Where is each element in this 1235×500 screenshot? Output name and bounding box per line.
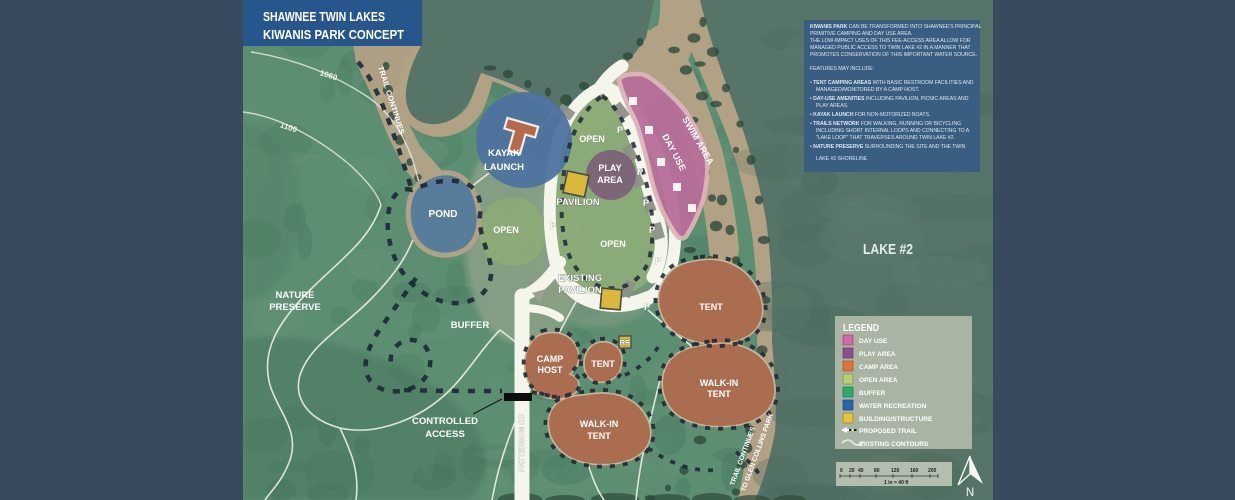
svg-text:DAY USE: DAY USE (859, 338, 888, 345)
svg-text:KAYAK: KAYAK (488, 148, 520, 159)
svg-text:120: 120 (891, 468, 900, 474)
svg-text:160: 160 (910, 468, 919, 474)
svg-text:• KAYAK LAUNCH FOR NON-MOTORIZ: • KAYAK LAUNCH FOR NON-MOTORIZED BOATS. (810, 112, 930, 118)
svg-text:P: P (617, 125, 624, 136)
svg-text:WALK-IN: WALK-IN (580, 419, 619, 429)
svg-text:PLAY AREA: PLAY AREA (859, 351, 896, 358)
svg-text:PRESERVE: PRESERVE (269, 302, 321, 313)
svg-text:OPEN AREA: OPEN AREA (859, 377, 898, 384)
svg-text:MANAGED/MONITORED BY A CAMP HO: MANAGED/MONITORED BY A CAMP HOST. (816, 87, 919, 93)
svg-text:P: P (643, 198, 650, 209)
svg-text:BUFFER: BUFFER (451, 320, 490, 331)
svg-text:"LAKE LOOP" THAT TRAVERSES ARO: "LAKE LOOP" THAT TRAVERSES AROUND TWIN L… (816, 135, 955, 141)
svg-text:PLAY: PLAY (598, 163, 621, 173)
svg-text:80: 80 (874, 468, 880, 474)
svg-text:ACCESS: ACCESS (425, 429, 465, 440)
svg-text:PLAY AREAS.: PLAY AREAS. (816, 103, 848, 109)
svg-text:TENT: TENT (699, 302, 723, 312)
svg-text:PROMOTES CONSERVATION OF THIS: PROMOTES CONSERVATION OF THIS IMPORTANT … (810, 52, 977, 58)
svg-text:200: 200 (928, 468, 937, 474)
svg-text:LAUNCH: LAUNCH (484, 162, 524, 173)
svg-text:INCLUDING SHORT INTERNAL LOOPS: INCLUDING SHORT INTERNAL LOOPS AND CONNE… (816, 128, 970, 134)
svg-text:AREA: AREA (597, 175, 623, 185)
svg-text:WATER RECREATION: WATER RECREATION (859, 403, 927, 410)
svg-text:P: P (655, 256, 662, 267)
svg-text:LAKE #2: LAKE #2 (863, 242, 913, 258)
svg-text:HOST: HOST (537, 365, 563, 375)
svg-text:KIWANIS PARK CAN BE TRANSFORME: KIWANIS PARK CAN BE TRANSFORMED INTO SHA… (810, 24, 982, 30)
svg-text:LAKE #2 SHORELINE.: LAKE #2 SHORELINE. (816, 156, 868, 162)
svg-text:N: N (966, 487, 974, 499)
svg-text:PATTERSON RD: PATTERSON RD (517, 413, 526, 472)
svg-text:CAMP: CAMP (537, 354, 564, 364)
svg-text:BUILDING/STRUCTURE: BUILDING/STRUCTURE (859, 416, 933, 423)
svg-text:P: P (637, 167, 644, 178)
svg-text:P: P (649, 225, 656, 236)
svg-text:TENT: TENT (591, 359, 615, 369)
svg-text:NATURE: NATURE (276, 290, 315, 301)
svg-text:PRIMITIVE CAMPING AND DAY USE: PRIMITIVE CAMPING AND DAY USE AREA. (810, 31, 912, 37)
svg-text:EXISTING: EXISTING (558, 273, 602, 284)
svg-text:1 in = 40 ft: 1 in = 40 ft (884, 480, 909, 486)
svg-text:PAVILION: PAVILION (558, 285, 602, 296)
svg-text:• DAY-USE AMENITIES INCLUDING: • DAY-USE AMENITIES INCLUDING PAVILION, … (810, 96, 969, 102)
svg-text:0: 0 (840, 468, 843, 474)
svg-text:P: P (550, 221, 557, 232)
svg-text:KIWANIS PARK CONCEPT: KIWANIS PARK CONCEPT (263, 27, 404, 42)
svg-text:EXISTING CONTOURS: EXISTING CONTOURS (859, 441, 929, 448)
svg-text:P: P (644, 302, 651, 313)
svg-text:THE LOW-IMPACT USES OF THIS FE: THE LOW-IMPACT USES OF THIS FEE-ACCESS A… (810, 38, 971, 44)
svg-text:OPEN: OPEN (493, 225, 519, 235)
svg-text:20: 20 (849, 468, 855, 474)
svg-text:• NATURE PRESERVE SURROUNDING: • NATURE PRESERVE SURROUNDING THE SITE A… (810, 144, 966, 150)
svg-text:POND: POND (429, 209, 458, 220)
svg-text:SHAWNEE TWIN LAKES: SHAWNEE TWIN LAKES (263, 9, 385, 24)
svg-text:MANAGED PUBLIC ACCESS TO TWIN: MANAGED PUBLIC ACCESS TO TWIN LAKE #2 IN… (810, 45, 971, 51)
svg-text:RR: RR (620, 338, 631, 347)
svg-text:OPEN: OPEN (579, 134, 605, 144)
svg-text:PROPOSED TRAIL: PROPOSED TRAIL (859, 428, 917, 435)
svg-text:TENT: TENT (707, 389, 731, 399)
svg-text:CAMP AREA: CAMP AREA (859, 364, 898, 371)
svg-text:FEATURES MAY INCLUDE:: FEATURES MAY INCLUDE: (810, 66, 874, 72)
svg-text:CONTROLLED: CONTROLLED (412, 416, 478, 427)
svg-text:LEGEND: LEGEND (843, 323, 879, 334)
svg-text:WALK-IN: WALK-IN (700, 378, 739, 388)
svg-text:• TENT CAMPING AREAS WITH BASI: • TENT CAMPING AREAS WITH BASIC RESTROOM… (810, 80, 974, 86)
svg-text:BUFFER: BUFFER (859, 390, 886, 397)
svg-text:40: 40 (858, 468, 864, 474)
svg-text:PAVILION: PAVILION (556, 197, 600, 208)
svg-text:OPEN: OPEN (600, 239, 626, 249)
svg-text:TENT: TENT (587, 431, 611, 441)
svg-text:• TRAILS NETWORK FOR WALKING,: • TRAILS NETWORK FOR WALKING, RUNNING OR… (810, 121, 961, 127)
